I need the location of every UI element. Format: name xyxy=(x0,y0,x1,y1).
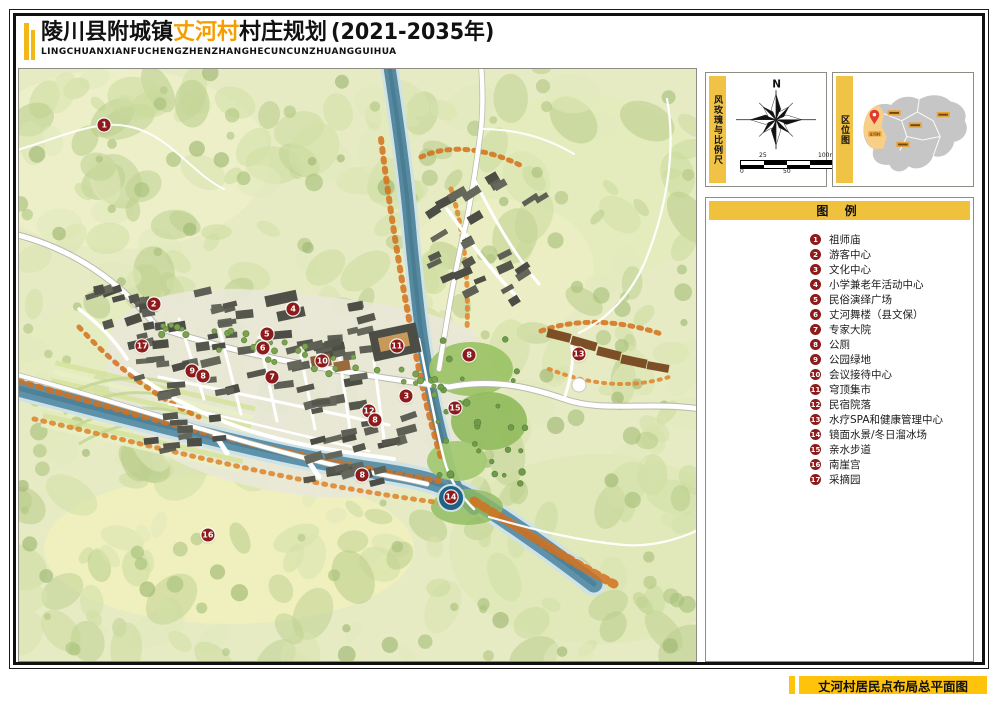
map-marker-7: 7 xyxy=(266,370,279,383)
compass-scale-panel: 风玫瑰与比例尺 N xyxy=(705,72,827,187)
scale-tick-25: 25 xyxy=(759,152,767,159)
location-panel-strip: 区位图 xyxy=(836,76,853,183)
village-master-plan-map: 1245617987101181331281581416 xyxy=(18,68,697,662)
legend-bullet-2: 2 xyxy=(810,249,821,260)
legend-label: 小学兼老年活动中心 xyxy=(829,277,924,292)
legend-label: 水疗SPA和健康管理中心 xyxy=(829,412,943,427)
map-marker-8: 8 xyxy=(197,370,210,383)
compass-north-label: N xyxy=(772,78,781,90)
legend-item-16: 16南崖宫 xyxy=(810,457,943,472)
compass-panel-strip: 风玫瑰与比例尺 xyxy=(709,76,726,183)
legend-item-7: 7专家大院 xyxy=(810,322,943,337)
legend-label: 游客中心 xyxy=(829,247,871,262)
legend-item-9: 9公园绿地 xyxy=(810,352,943,367)
scale-bar: 25 100m 0 50 xyxy=(740,152,832,174)
location-map-panel: 区位图 丈河村 xyxy=(832,72,974,187)
title-year: (2021-2035年) xyxy=(331,21,494,45)
legend-item-15: 15亲水步道 xyxy=(810,442,943,457)
legend-label: 祖师庙 xyxy=(829,232,861,247)
legend-header: 图 例 xyxy=(709,201,970,220)
map-marker-5: 5 xyxy=(260,328,273,341)
legend-item-2: 2游客中心 xyxy=(810,247,943,262)
svg-text:丈河村: 丈河村 xyxy=(869,131,880,136)
legend-item-12: 12民宿院落 xyxy=(810,397,943,412)
map-marker-1: 1 xyxy=(98,119,111,132)
compass-panel-label: 风玫瑰与比例尺 xyxy=(711,95,724,165)
legend-label: 会议接待中心 xyxy=(829,367,892,382)
legend-label: 文化中心 xyxy=(829,262,871,277)
legend-item-4: 4小学兼老年活动中心 xyxy=(810,277,943,292)
map-caption: 丈河村居民点布局总平面图 xyxy=(799,676,987,694)
map-marker-8: 8 xyxy=(463,348,476,361)
legend-label: 采摘园 xyxy=(829,472,861,487)
legend-label: 穹顶集市 xyxy=(829,382,871,397)
map-marker-10: 10 xyxy=(316,354,329,367)
legend-label: 民宿院落 xyxy=(829,397,871,412)
map-marker-13: 13 xyxy=(572,347,585,360)
legend-bullet-9: 9 xyxy=(810,354,821,365)
legend-bullet-14: 14 xyxy=(810,429,821,440)
page-title: 陵川县附城镇丈河村村庄规划(2021-2035年) xyxy=(41,21,505,45)
map-marker-16: 16 xyxy=(201,528,214,541)
page-subtitle: LINGCHUANXIANFUCHENGZHENZHANGHECUNCUNZHU… xyxy=(41,47,505,57)
legend-item-17: 17采摘园 xyxy=(810,472,943,487)
scale-tick-0: 0 xyxy=(740,168,744,175)
legend-bullet-8: 8 xyxy=(810,339,821,350)
legend-bullet-10: 10 xyxy=(810,369,821,380)
legend-bullet-1: 1 xyxy=(810,234,821,245)
legend-item-13: 13水疗SPA和健康管理中心 xyxy=(810,412,943,427)
map-marker-2: 2 xyxy=(147,298,160,311)
legend-label: 镜面水景/冬日溜冰场 xyxy=(829,427,927,442)
legend-bullet-17: 17 xyxy=(810,474,821,485)
legend-item-3: 3文化中心 xyxy=(810,262,943,277)
legend-bullet-13: 13 xyxy=(810,414,821,425)
map-marker-8: 8 xyxy=(369,414,382,427)
legend-item-6: 6丈河舞楼（县文保） xyxy=(810,307,943,322)
legend-bullet-7: 7 xyxy=(810,324,821,335)
map-marker-3: 3 xyxy=(400,389,413,402)
title-accent-bars xyxy=(24,21,35,60)
legend-item-14: 14镜面水景/冬日溜冰场 xyxy=(810,427,943,442)
caption-accent-bar xyxy=(789,676,795,694)
title-block: 陵川县附城镇丈河村村庄规划(2021-2035年) LINGCHUANXIANF… xyxy=(24,21,505,60)
title-highlight: 丈河村 xyxy=(173,20,239,45)
legend-label: 公厕 xyxy=(829,337,850,352)
legend-bullet-16: 16 xyxy=(810,459,821,470)
legend-list: 1祖师庙2游客中心3文化中心4小学兼老年活动中心5民俗演绎广场6丈河舞楼（县文保… xyxy=(810,232,943,487)
legend-label: 南崖宫 xyxy=(829,457,861,472)
legend-bullet-12: 12 xyxy=(810,399,821,410)
legend-bullet-4: 4 xyxy=(810,279,821,290)
legend-label: 公园绿地 xyxy=(829,352,871,367)
legend-item-10: 10会议接待中心 xyxy=(810,367,943,382)
legend-item-11: 11穹顶集市 xyxy=(810,382,943,397)
map-marker-layer: 1245617987101181331281581416 xyxy=(19,69,696,661)
legend-bullet-15: 15 xyxy=(810,444,821,455)
legend-bullet-3: 3 xyxy=(810,264,821,275)
legend-bullet-5: 5 xyxy=(810,294,821,305)
map-marker-6: 6 xyxy=(256,341,269,354)
legend-item-8: 8公厕 xyxy=(810,337,943,352)
legend-bullet-11: 11 xyxy=(810,384,821,395)
legend-item-5: 5民俗演绎广场 xyxy=(810,292,943,307)
legend-label: 专家大院 xyxy=(829,322,871,337)
map-marker-17: 17 xyxy=(136,340,149,353)
legend-label: 民俗演绎广场 xyxy=(829,292,892,307)
legend-label: 亲水步道 xyxy=(829,442,871,457)
legend-panel: 图 例 1祖师庙2游客中心3文化中心4小学兼老年活动中心5民俗演绎广场6丈河舞楼… xyxy=(705,197,974,662)
compass-rose: N xyxy=(728,75,824,153)
map-marker-8: 8 xyxy=(356,469,369,482)
map-marker-11: 11 xyxy=(390,340,403,353)
map-marker-14: 14 xyxy=(444,491,457,504)
map-marker-4: 4 xyxy=(287,302,300,315)
location-map: 丈河村 xyxy=(856,76,970,183)
location-panel-label: 区位图 xyxy=(838,115,851,145)
map-marker-15: 15 xyxy=(448,402,461,415)
legend-bullet-6: 6 xyxy=(810,309,821,320)
legend-item-1: 1祖师庙 xyxy=(810,232,943,247)
planning-poster: 陵川县附城镇丈河村村庄规划(2021-2035年) LINGCHUANXIANF… xyxy=(0,0,1000,706)
legend-label: 丈河舞楼（县文保） xyxy=(829,307,924,322)
scale-tick-50: 50 xyxy=(783,168,791,175)
